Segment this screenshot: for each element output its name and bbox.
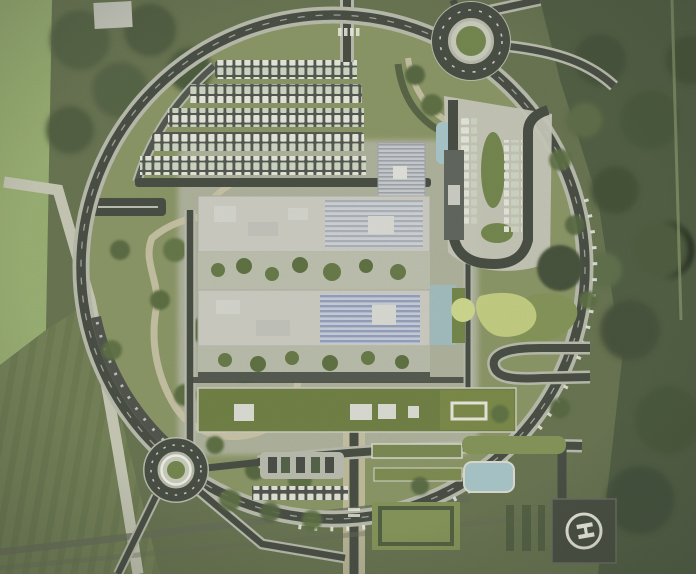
site-plan-image: H (0, 0, 696, 574)
site-plan-svg: H (0, 0, 696, 574)
haze-overlay (0, 0, 696, 574)
